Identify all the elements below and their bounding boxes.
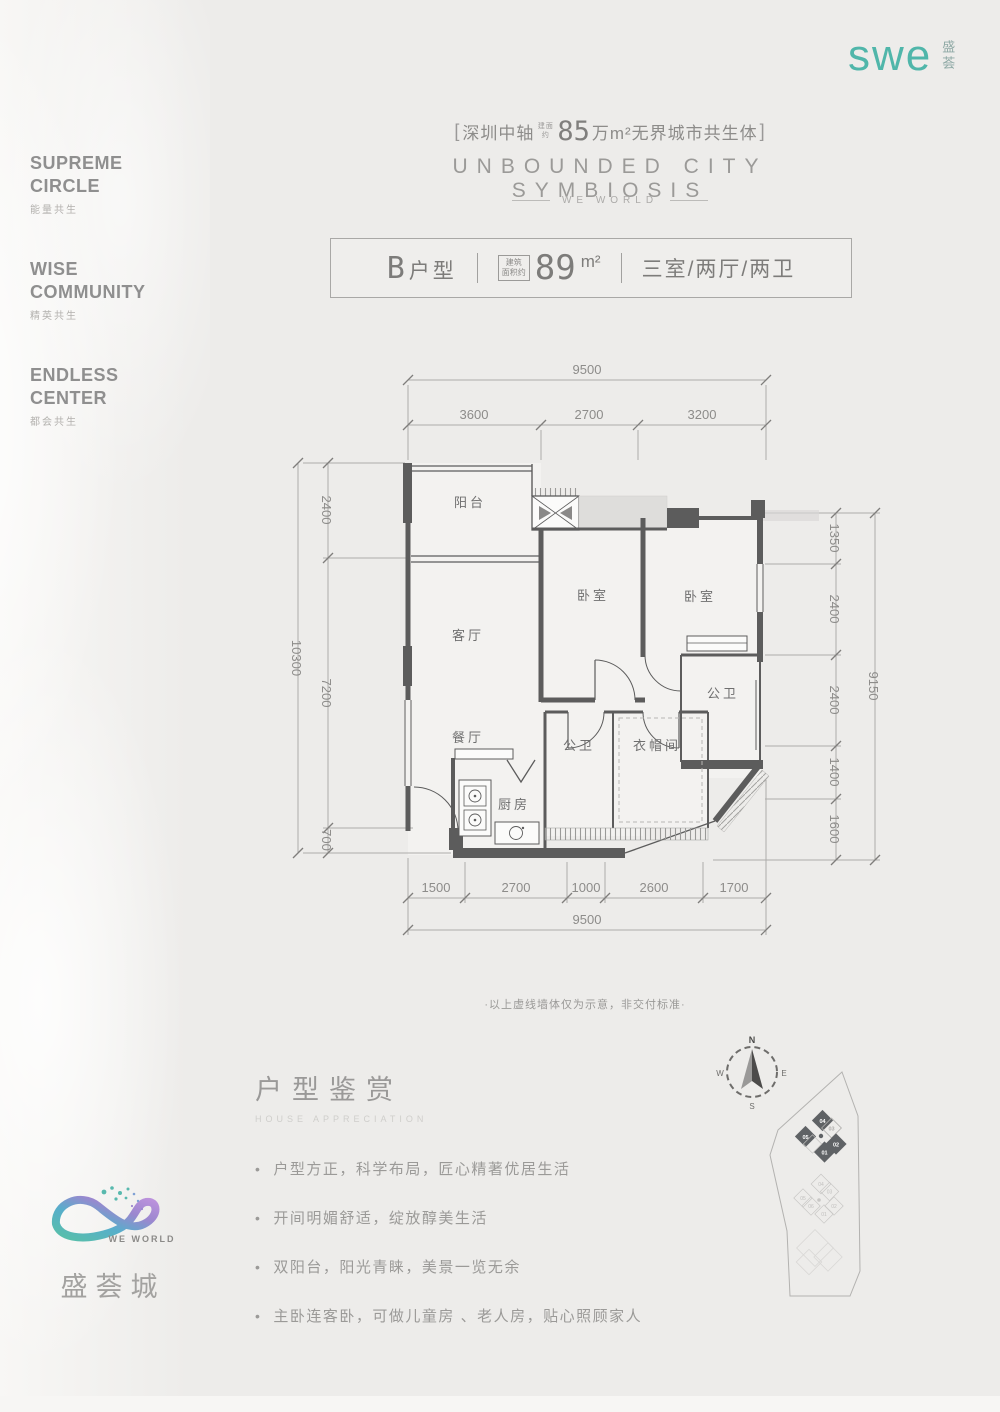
tagline-big-number: 85 [557,116,590,147]
unit-suffix: 户型 [409,255,457,285]
rail-item-en: ENDLESS CENTER [30,364,200,409]
siteplan-dark-buildings: 04 03 05 02 01 [795,1110,847,1163]
tagline-bracket-left: [ [454,121,460,142]
dim-right-seg: 1350 [827,524,842,553]
appreciation-bullet: • 双阳台，阳光青睐，美景一览无余 [255,1256,735,1277]
floorplan-note: ·以上虚线墙体仅为示意，非交付标准· [285,996,885,1012]
svg-text:W: W [716,1069,724,1078]
bottom-strip [0,1396,1000,1412]
header-tagline: [ 深圳中轴 建面约 85 万m²无界城市共生体 ] [380,116,840,147]
siteplan: 04 03 05 02 01 04 03 05 06 [760,1058,975,1353]
svg-text:02: 02 [833,1143,839,1149]
tagline-bracket-right: ] [760,121,766,142]
dim-right-seg: 2400 [827,595,842,624]
bullet-text: 双阳台，阳光青睐，美景一览无余 [273,1256,521,1277]
unit-name: B 户型 [387,251,457,286]
svg-text:01: 01 [821,1151,827,1157]
dim-left-seg: 700 [319,829,334,851]
rail-item-supreme-circle: SUPREME CIRCLE 能量共生 [30,152,200,216]
dim-bottom-seg: 1700 [720,880,749,895]
rail-item-endless-center: ENDLESS CENTER 都会共生 [30,364,200,428]
dim-bottom-seg: 1500 [422,880,451,895]
dim-top-seg: 2700 [575,407,604,422]
room-label-kitchen: 厨房 [498,797,530,812]
bullet-icon: • [255,1308,261,1324]
dim-left-seg: 2400 [319,496,334,525]
unitbar-divider [621,253,622,283]
area-label-box: 建筑 面积约 [498,255,530,280]
svg-text:03: 03 [828,1127,834,1133]
svg-text:04: 04 [818,1182,824,1188]
brand-logo: swe 盛荟 [848,36,957,76]
dim-right-seg: 1600 [827,815,842,844]
dim-bottom-seg: 2600 [640,880,669,895]
floorplan-svg: 9500 3600 2700 3200 10300 2400 7200 700 … [283,350,883,965]
we-world-logo: WE WORLD [38,1176,188,1260]
room-label-bedroom-1: 卧室 [577,588,609,603]
siteplan-light-buildings: 04 03 05 06 02 01 [794,1174,843,1223]
unit-layout: 三室/两厅/两卫 [642,253,796,283]
siteplan-faint-cluster [796,1230,842,1275]
appreciation-subtitle: HOUSE APPRECIATION [255,1114,735,1124]
rail-item-cn: 精英共生 [30,307,200,322]
appreciation-section: 户型鉴赏 HOUSE APPRECIATION • 户型方正，科学布局，匠心精著… [255,1068,735,1354]
unit-info-bar: B 户型 建筑 面积约 89 m² 三室/两厅/两卫 [330,238,852,298]
unit-area: 建筑 面积约 89 m² [498,248,601,288]
left-rail: SUPREME CIRCLE 能量共生 WISE COMMUNITY 精英共生 … [30,152,200,470]
svg-text:01: 01 [821,1212,827,1218]
appreciation-list: • 户型方正，科学布局，匠心精著优居生活 • 开间明媚舒适，绽放醇美生活 • 双… [255,1158,735,1326]
room-label-closet: 衣帽间 [633,738,681,753]
dim-right-seg: 1400 [827,758,842,787]
svg-text:05: 05 [800,1196,806,1202]
room-label-bedroom-2: 卧室 [684,589,716,604]
tagline-rest: 万m²无界城市共生体 [592,119,758,144]
tagline-area-prefix: 建面约 [537,123,554,139]
svg-text:S: S [749,1102,754,1111]
brand-logo-text: swe [848,36,932,76]
dim-left-seg: 7200 [319,679,334,708]
siteplan-svg: 04 03 05 02 01 04 03 05 06 [760,1058,975,1348]
footer-project-name: 盛荟城 [28,1265,198,1304]
dim-top-seg: 3200 [688,407,717,422]
bullet-text: 开间明媚舒适，绽放醇美生活 [273,1207,488,1228]
dim-left-outer: 10300 [289,640,304,676]
appreciation-title: 户型鉴赏 [255,1068,735,1107]
dim-top-total: 9500 [573,362,602,377]
bullet-text: 户型方正，科学布局，匠心精著优居生活 [273,1158,570,1179]
appreciation-bullet: • 主卧连客卧，可做儿童房 、老人房，贴心照顾家人 [255,1305,735,1326]
rail-item-en: WISE COMMUNITY [30,258,200,303]
area-label-line1: 建筑 [506,258,522,267]
area-value: 89 [535,248,576,288]
area-label-line2: 面积约 [502,268,526,277]
bullet-icon: • [255,1161,261,1177]
subtitle-text: WE WORLD [562,195,658,206]
bullet-icon: • [255,1210,261,1226]
room-label-bath-center: 公卫 [563,738,595,753]
unit-code: B [387,251,405,286]
dim-right-seg: 2400 [827,686,842,715]
subtitle-rule-right [670,200,708,201]
room-label-dining: 餐厅 [452,730,484,745]
svg-text:03: 03 [827,1190,833,1196]
brand-logo-cn: 盛荟 [938,40,957,72]
floorplan: 9500 3600 2700 3200 10300 2400 7200 700 … [283,350,883,970]
appreciation-bullet: • 开间明媚舒适，绽放醇美生活 [255,1207,735,1228]
bullet-icon: • [255,1259,261,1275]
dim-bottom-seg: 2700 [502,880,531,895]
unitbar-divider [477,253,478,283]
rail-item-en: SUPREME CIRCLE [30,152,200,197]
bullet-text: 主卧连客卧，可做儿童房 、老人房，贴心照顾家人 [273,1305,642,1326]
rail-item-wise-community: WISE COMMUNITY 精英共生 [30,258,200,322]
area-unit: m² [581,252,601,272]
dim-bottom-total: 9500 [573,912,602,927]
footer-brand: WE WORLD 盛荟城 [28,1176,198,1304]
svg-text:02: 02 [831,1204,837,1210]
dim-top-seg: 3600 [460,407,489,422]
room-label-balcony: 阳台 [454,495,486,510]
dim-bottom-seg: 1000 [572,880,601,895]
svg-text:06: 06 [808,1204,814,1210]
room-label-living: 客厅 [452,628,484,643]
infinity-swoosh [56,1200,156,1238]
svg-text:N: N [749,1035,756,1045]
siteplan-boundary [770,1072,860,1296]
rail-item-cn: 能量共生 [30,201,200,216]
subtitle-rule-left [512,200,550,201]
room-label-bath-right: 公卫 [707,686,739,701]
rail-item-cn: 都会共生 [30,413,200,428]
header-subtitle: WE WORLD [360,195,860,206]
appreciation-bullet: • 户型方正，科学布局，匠心精著优居生活 [255,1158,735,1179]
we-world-text: WE WORLD [109,1234,176,1244]
dim-right-outer: 9150 [866,672,881,701]
tagline-city: 深圳中轴 [462,119,534,144]
poster-page: swe 盛荟 SUPREME CIRCLE 能量共生 WISE COMMUNIT… [0,0,1000,1412]
